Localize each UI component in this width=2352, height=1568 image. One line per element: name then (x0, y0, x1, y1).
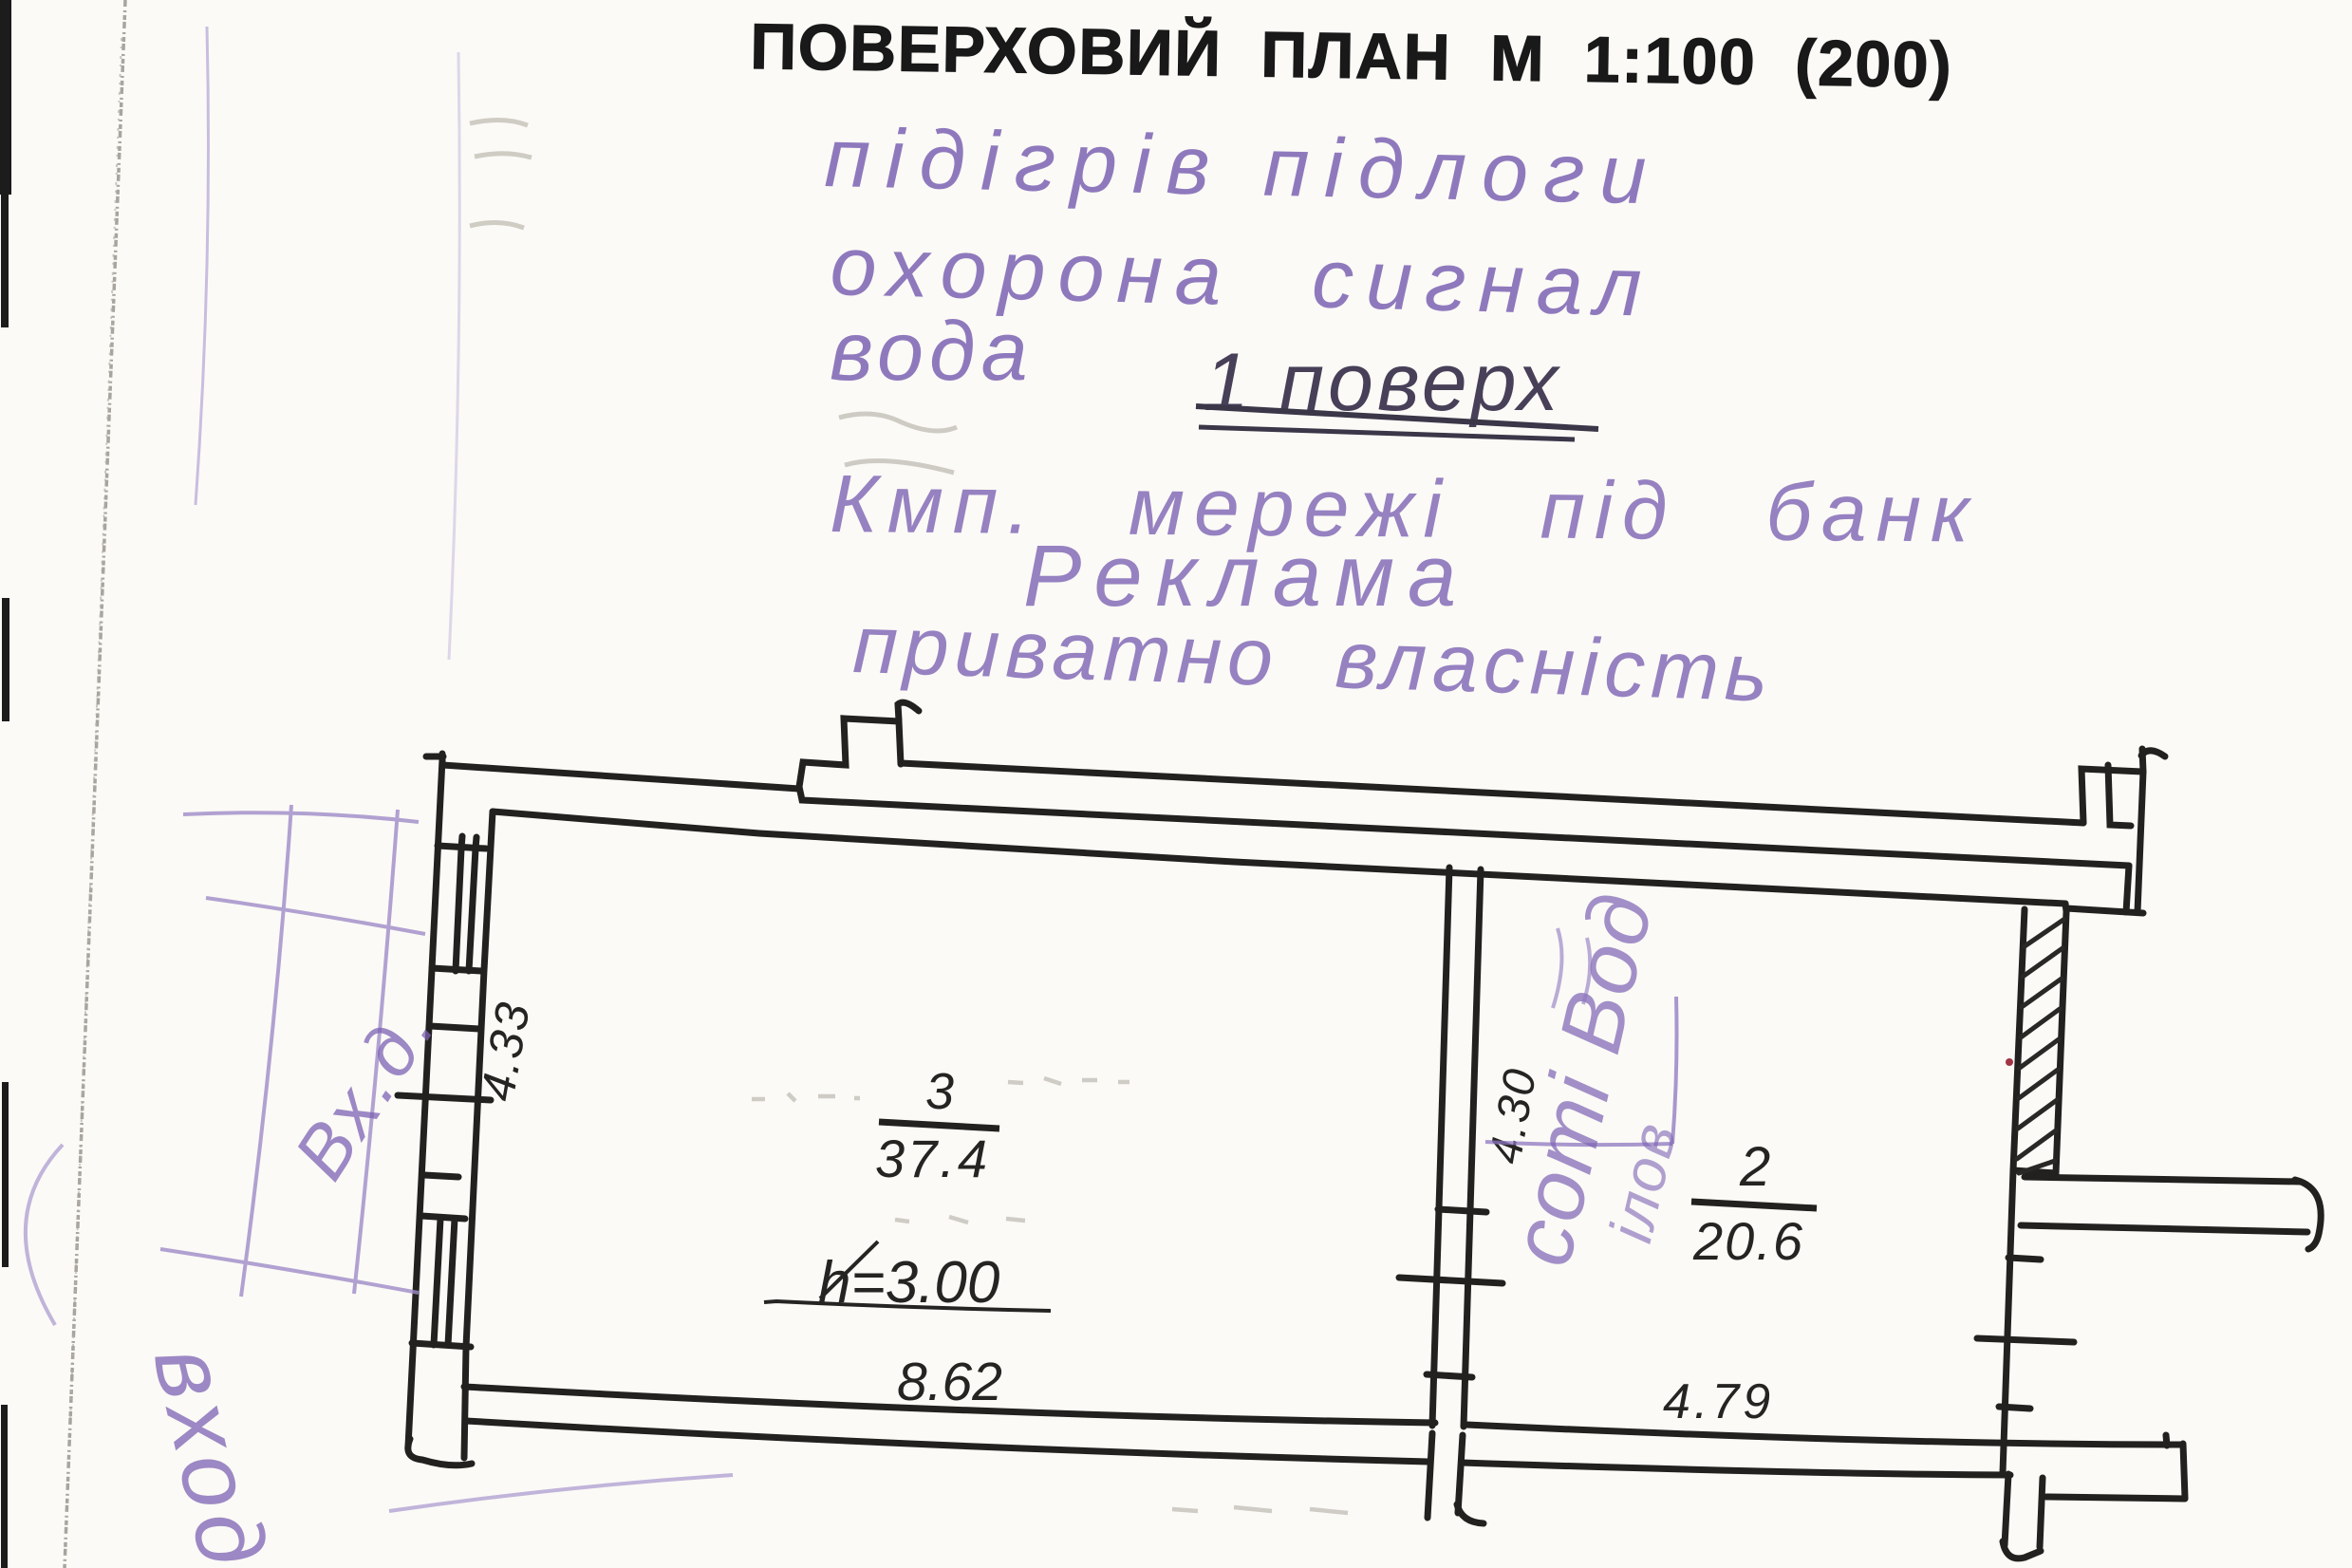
svg-text:37.4: 37.4 (875, 1129, 990, 1188)
svg-text:вода: вода (830, 304, 1034, 398)
svg-text:3: 3 (925, 1063, 954, 1120)
svg-text:20.6: 20.6 (1692, 1211, 1804, 1271)
svg-text:підігрів підлоги: підігрів підлоги (824, 110, 1663, 221)
svg-text:8.62: 8.62 (897, 1352, 1002, 1412)
svg-text:2: 2 (1739, 1136, 1770, 1198)
svg-text:4.79: 4.79 (1663, 1374, 1774, 1429)
